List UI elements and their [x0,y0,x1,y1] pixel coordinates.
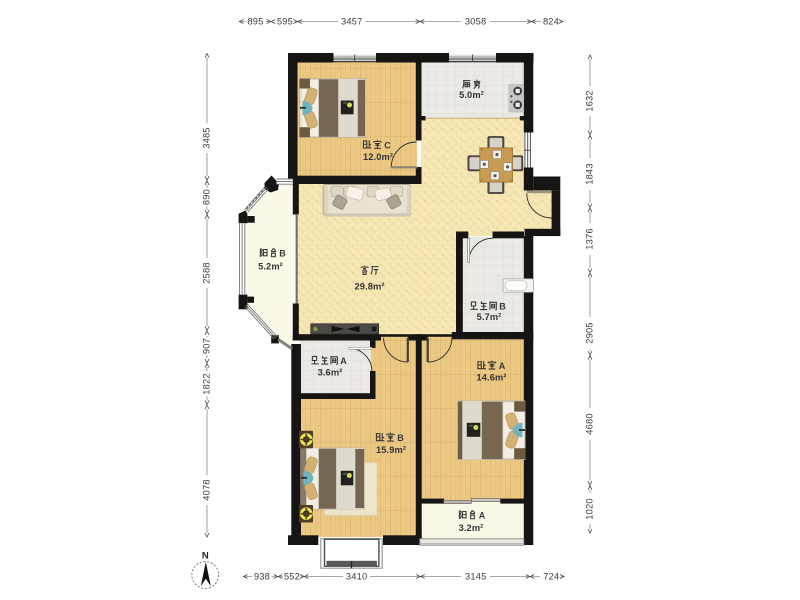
svg-text:1632: 1632 [585,90,595,111]
svg-text:3485: 3485 [202,127,212,148]
svg-text:552: 552 [284,571,300,581]
svg-text:14.6m²: 14.6m² [476,372,506,382]
svg-text:5.0m²: 5.0m² [459,90,484,100]
svg-text:29.8m²: 29.8m² [354,282,384,292]
svg-text:907: 907 [202,338,212,354]
svg-text:12.0m²: 12.0m² [363,152,393,162]
svg-text:895: 895 [247,16,263,26]
svg-text:5.2m²: 5.2m² [258,261,283,271]
svg-text:B: B [397,433,404,443]
svg-text:5.7m²: 5.7m² [477,312,502,322]
svg-text:A: A [499,361,506,371]
svg-text:938: 938 [254,571,270,581]
svg-text:824: 824 [543,16,559,26]
svg-text:2905: 2905 [585,322,595,343]
svg-text:C: C [384,140,391,150]
svg-text:1843: 1843 [585,163,595,184]
svg-text:15.9m²: 15.9m² [376,445,406,455]
svg-text:2588: 2588 [202,262,212,283]
svg-text:4680: 4680 [585,413,595,434]
svg-text:595: 595 [277,16,293,26]
svg-text:1822: 1822 [202,373,212,394]
svg-text:1020: 1020 [585,498,595,519]
svg-text:3145: 3145 [465,571,486,581]
svg-text:3058: 3058 [465,16,486,26]
svg-text:3410: 3410 [346,571,367,581]
svg-text:890: 890 [202,189,212,205]
svg-text:B: B [279,249,286,259]
svg-text:A: A [479,511,486,521]
svg-text:4078: 4078 [202,479,212,500]
svg-text:A: A [340,356,347,366]
svg-text:N: N [202,551,209,562]
svg-text:B: B [499,302,506,312]
svg-text:3.6m²: 3.6m² [318,367,343,377]
svg-text:3457: 3457 [341,16,362,26]
svg-text:724: 724 [543,571,559,581]
svg-text:3.2m²: 3.2m² [459,523,484,533]
svg-text:1376: 1376 [585,228,595,249]
